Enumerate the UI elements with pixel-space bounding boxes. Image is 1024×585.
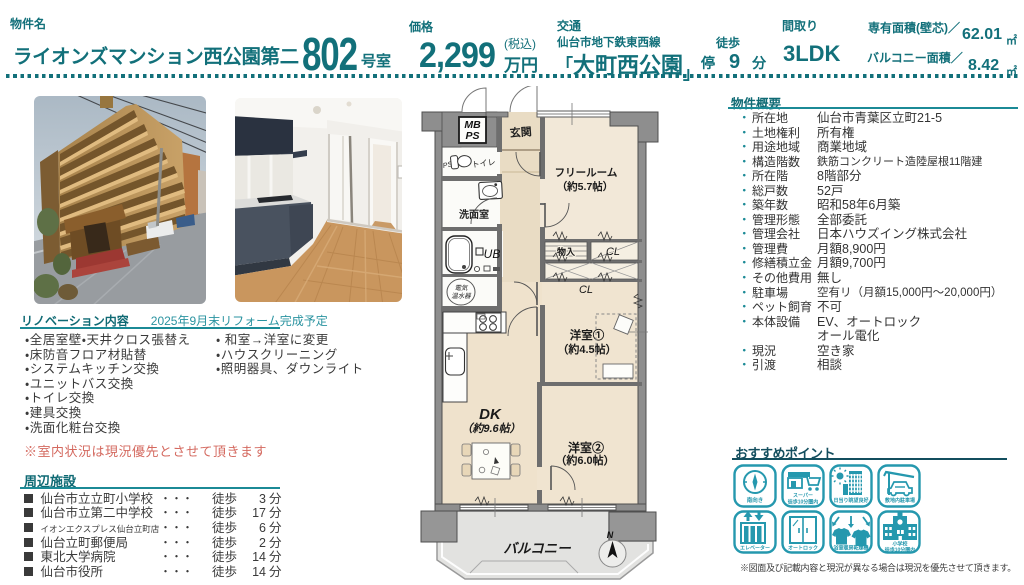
svg-text:電気: 電気 (455, 284, 470, 292)
svg-text:スーパー: スーパー (793, 492, 813, 499)
svg-text:洋室②: 洋室② (568, 440, 604, 455)
svg-text:エレベーター: エレベーター (740, 545, 770, 552)
svg-text:洗面室: 洗面室 (459, 208, 489, 221)
svg-text:小学校: 小学校 (892, 541, 908, 548)
svg-text:洋室①: 洋室① (570, 328, 605, 342)
svg-text:UB: UB (484, 247, 501, 261)
svg-text:PS: PS (465, 130, 479, 142)
svg-text:（約4.5帖）: （約4.5帖） (557, 342, 616, 356)
svg-text:物入: 物入 (557, 246, 576, 257)
svg-text:敷地内駐車場: 敷地内駐車場 (884, 497, 915, 504)
svg-text:南向き: 南向き (747, 496, 764, 504)
svg-text:（約5.7帖）: （約5.7帖） (557, 180, 614, 193)
svg-text:（約9.6帖）: （約9.6帖） (461, 422, 520, 435)
svg-text:CL: CL (579, 284, 593, 296)
svg-text:DK: DK (479, 406, 502, 423)
svg-text:バルコニー: バルコニー (503, 541, 571, 556)
svg-text:徒歩10分圏内: 徒歩10分圏内 (787, 499, 819, 506)
svg-text:徒歩10分圏内: 徒歩10分圏内 (884, 547, 916, 554)
svg-text:N: N (607, 530, 614, 540)
svg-text:（約6.0帖）: （約6.0帖） (555, 453, 614, 467)
svg-text:日当り眺望良好: 日当り眺望良好 (833, 497, 868, 504)
svg-text:フリールーム: フリールーム (555, 167, 618, 179)
svg-text:温水器: 温水器 (451, 292, 472, 300)
svg-text:玄関: 玄関 (509, 124, 532, 140)
svg-text:オートロック: オートロック (788, 545, 818, 552)
svg-text:浴室暖房乾燥機: 浴室暖房乾燥機 (833, 545, 868, 552)
